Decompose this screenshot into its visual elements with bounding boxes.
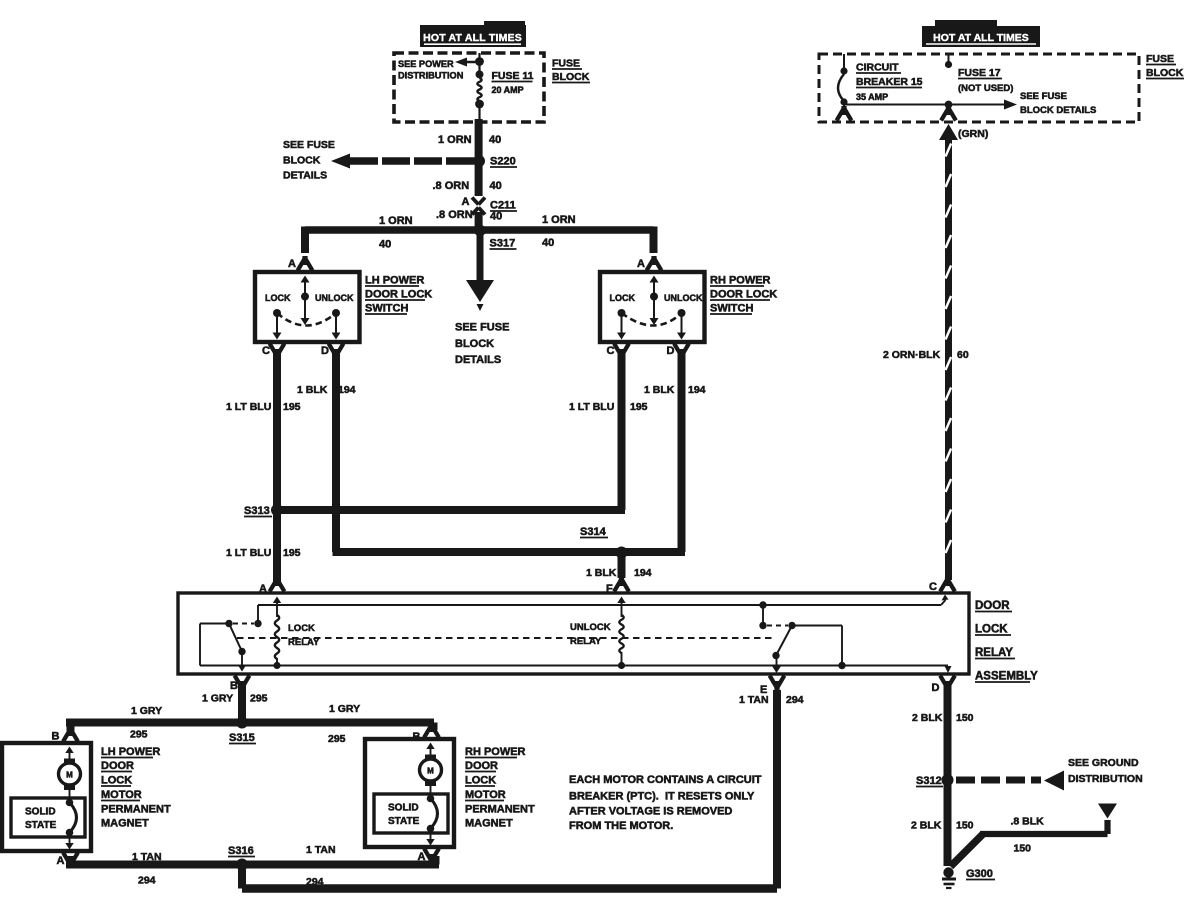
svg-text:C: C xyxy=(262,345,270,357)
svg-text:1 GRY: 1 GRY xyxy=(329,703,360,715)
svg-text:D: D xyxy=(321,345,329,357)
svg-text:40: 40 xyxy=(489,134,501,146)
svg-text:EACH MOTOR CONTAINS A CIRCUIT: EACH MOTOR CONTAINS A CIRCUIT xyxy=(569,774,762,786)
svg-text:BLOCK: BLOCK xyxy=(552,71,590,83)
svg-text:BLOCK DETAILS: BLOCK DETAILS xyxy=(1020,105,1096,116)
svg-text:UNLOCK: UNLOCK xyxy=(664,293,703,303)
svg-text:AFTER VOLTAGE IS REMOVED: AFTER VOLTAGE IS REMOVED xyxy=(569,806,732,818)
svg-text:HOT AT ALL TIMES: HOT AT ALL TIMES xyxy=(423,32,522,44)
svg-text:SEE FUSE: SEE FUSE xyxy=(1020,91,1067,102)
svg-text:35 AMP: 35 AMP xyxy=(856,92,888,102)
svg-text:DOOR: DOOR xyxy=(465,760,498,772)
svg-text:S317: S317 xyxy=(490,238,516,250)
svg-text:S312: S312 xyxy=(916,775,942,787)
svg-text:294: 294 xyxy=(138,875,156,887)
svg-text:2 BLK: 2 BLK xyxy=(911,820,942,832)
svg-text:RELAY: RELAY xyxy=(288,637,320,648)
svg-text:FUSE 17: FUSE 17 xyxy=(958,67,1001,79)
svg-text:SEE FUSE: SEE FUSE xyxy=(283,139,335,151)
svg-text:M: M xyxy=(66,771,73,780)
svg-text:LOCK: LOCK xyxy=(610,293,636,303)
svg-text:SEE POWER: SEE POWER xyxy=(398,59,454,69)
svg-text:150: 150 xyxy=(1014,843,1032,855)
svg-text:MAGNET: MAGNET xyxy=(465,818,513,830)
svg-text:1 LT BLU: 1 LT BLU xyxy=(226,547,271,559)
svg-text:LOCK: LOCK xyxy=(288,623,315,634)
svg-text:295: 295 xyxy=(328,733,346,745)
svg-text:BLOCK: BLOCK xyxy=(455,338,494,350)
svg-text:1 GRY: 1 GRY xyxy=(131,705,162,717)
svg-text:LH POWER: LH POWER xyxy=(365,275,424,287)
svg-text:D: D xyxy=(932,682,940,694)
svg-text:DOOR LOCK: DOOR LOCK xyxy=(365,289,432,301)
svg-text:B: B xyxy=(413,731,421,743)
svg-text:STATE: STATE xyxy=(25,820,57,831)
svg-text:BLOCK: BLOCK xyxy=(283,155,321,167)
svg-text:SWITCH: SWITCH xyxy=(710,303,753,315)
svg-text:LOCK: LOCK xyxy=(465,775,496,787)
svg-text:20 AMP: 20 AMP xyxy=(492,85,524,95)
svg-text:.8 ORN: .8 ORN xyxy=(436,209,473,221)
svg-text:DISTRIBUTION: DISTRIBUTION xyxy=(1068,773,1143,785)
svg-text:1 ORN: 1 ORN xyxy=(379,215,413,227)
svg-text:SWITCH: SWITCH xyxy=(365,303,408,315)
svg-text:CIRCUIT: CIRCUIT xyxy=(856,62,899,74)
svg-text:RELAY: RELAY xyxy=(570,636,602,647)
svg-text:1 LT BLU: 1 LT BLU xyxy=(569,401,614,413)
svg-text:SOLID: SOLID xyxy=(25,807,56,818)
svg-text:1 ORN: 1 ORN xyxy=(542,214,576,226)
svg-text:D: D xyxy=(667,345,675,357)
svg-text:FUSE: FUSE xyxy=(1146,53,1174,65)
svg-text:LOCK: LOCK xyxy=(975,624,1008,636)
svg-text:295: 295 xyxy=(250,693,268,705)
svg-text:PERMANENT: PERMANENT xyxy=(465,804,535,816)
svg-text:40: 40 xyxy=(490,211,502,223)
svg-text:A: A xyxy=(637,258,645,270)
svg-text:LH POWER: LH POWER xyxy=(101,746,160,758)
svg-text:DOOR: DOOR xyxy=(975,600,1010,612)
svg-text:1 BLK: 1 BLK xyxy=(644,384,675,396)
svg-text:S314: S314 xyxy=(580,526,607,538)
svg-text:60: 60 xyxy=(957,349,969,361)
svg-text:S313: S313 xyxy=(244,505,270,517)
svg-text:A: A xyxy=(462,196,470,208)
svg-text:C: C xyxy=(607,345,615,357)
svg-text:ASSEMBLY: ASSEMBLY xyxy=(975,671,1038,683)
svg-text:295: 295 xyxy=(130,729,148,741)
svg-text:1 GRY: 1 GRY xyxy=(202,693,233,705)
svg-text:195: 195 xyxy=(630,401,648,413)
svg-text:1 TAN: 1 TAN xyxy=(132,851,162,863)
svg-text:2 BLK: 2 BLK xyxy=(912,712,943,724)
svg-text:UNLOCK: UNLOCK xyxy=(570,622,611,633)
svg-text:PERMANENT: PERMANENT xyxy=(101,804,171,816)
svg-text:195: 195 xyxy=(283,401,301,413)
svg-text:294: 294 xyxy=(786,694,804,706)
svg-text:B: B xyxy=(52,731,60,743)
svg-text:1 BLK: 1 BLK xyxy=(586,567,617,579)
svg-text:.8 BLK: .8 BLK xyxy=(1011,816,1045,828)
svg-text:195: 195 xyxy=(283,547,301,559)
svg-text:194: 194 xyxy=(338,384,356,396)
svg-text:1 BLK: 1 BLK xyxy=(297,384,328,396)
svg-text:M: M xyxy=(427,767,434,776)
svg-text:1 ORN: 1 ORN xyxy=(438,134,472,146)
svg-text:FUSE 11: FUSE 11 xyxy=(492,70,534,82)
svg-text:HOT AT ALL TIMES: HOT AT ALL TIMES xyxy=(933,32,1029,44)
svg-text:150: 150 xyxy=(956,712,974,724)
svg-text:MOTOR: MOTOR xyxy=(465,789,506,801)
svg-text:BREAKER 15: BREAKER 15 xyxy=(856,76,923,88)
svg-text:DOOR LOCK: DOOR LOCK xyxy=(710,289,777,301)
svg-text:DETAILS: DETAILS xyxy=(455,354,501,366)
svg-text:40: 40 xyxy=(379,239,391,251)
svg-text:S316: S316 xyxy=(228,845,254,857)
svg-text:DETAILS: DETAILS xyxy=(283,170,327,182)
svg-text:UNLOCK: UNLOCK xyxy=(315,293,354,303)
svg-text:S315: S315 xyxy=(229,732,255,744)
svg-text:DISTRIBUTION: DISTRIBUTION xyxy=(398,70,464,80)
svg-text:BLOCK: BLOCK xyxy=(1146,67,1184,79)
svg-text:A: A xyxy=(288,258,296,270)
svg-text:C: C xyxy=(929,581,937,593)
svg-text:SEE GROUND: SEE GROUND xyxy=(1068,757,1139,769)
svg-text:SOLID: SOLID xyxy=(388,803,419,814)
svg-text:LOCK: LOCK xyxy=(101,775,132,787)
svg-text:(NOT USED): (NOT USED) xyxy=(958,83,1013,94)
svg-text:150: 150 xyxy=(956,820,974,832)
svg-text:40: 40 xyxy=(542,237,554,249)
svg-text:1 TAN: 1 TAN xyxy=(306,844,336,856)
svg-text:FROM THE MOTOR.: FROM THE MOTOR. xyxy=(569,820,673,832)
svg-text:STATE: STATE xyxy=(388,816,420,827)
svg-text:BREAKER (PTC). IT RESETS ONLY: BREAKER (PTC). IT RESETS ONLY xyxy=(569,791,755,803)
svg-text:RH POWER: RH POWER xyxy=(710,275,771,287)
svg-text:40: 40 xyxy=(490,180,502,192)
svg-text:DOOR: DOOR xyxy=(101,760,134,772)
svg-text:RH POWER: RH POWER xyxy=(465,746,526,758)
svg-text:FUSE: FUSE xyxy=(552,58,580,70)
svg-text:G300: G300 xyxy=(966,868,993,880)
svg-text:2 ORN·BLK: 2 ORN·BLK xyxy=(883,349,941,361)
svg-text:SEE FUSE: SEE FUSE xyxy=(455,322,509,334)
svg-text:S220: S220 xyxy=(490,156,516,168)
svg-text:MAGNET: MAGNET xyxy=(101,818,149,830)
svg-text:RELAY: RELAY xyxy=(975,647,1013,659)
svg-text:1 TAN: 1 TAN xyxy=(739,694,769,706)
svg-text:.8 ORN: .8 ORN xyxy=(433,180,470,192)
svg-text:LOCK: LOCK xyxy=(265,293,291,303)
svg-text:MOTOR: MOTOR xyxy=(101,789,142,801)
svg-text:194: 194 xyxy=(688,384,706,396)
svg-text:194: 194 xyxy=(634,567,652,579)
svg-text:1 LT BLU: 1 LT BLU xyxy=(226,401,271,413)
svg-text:(GRN): (GRN) xyxy=(958,128,988,140)
